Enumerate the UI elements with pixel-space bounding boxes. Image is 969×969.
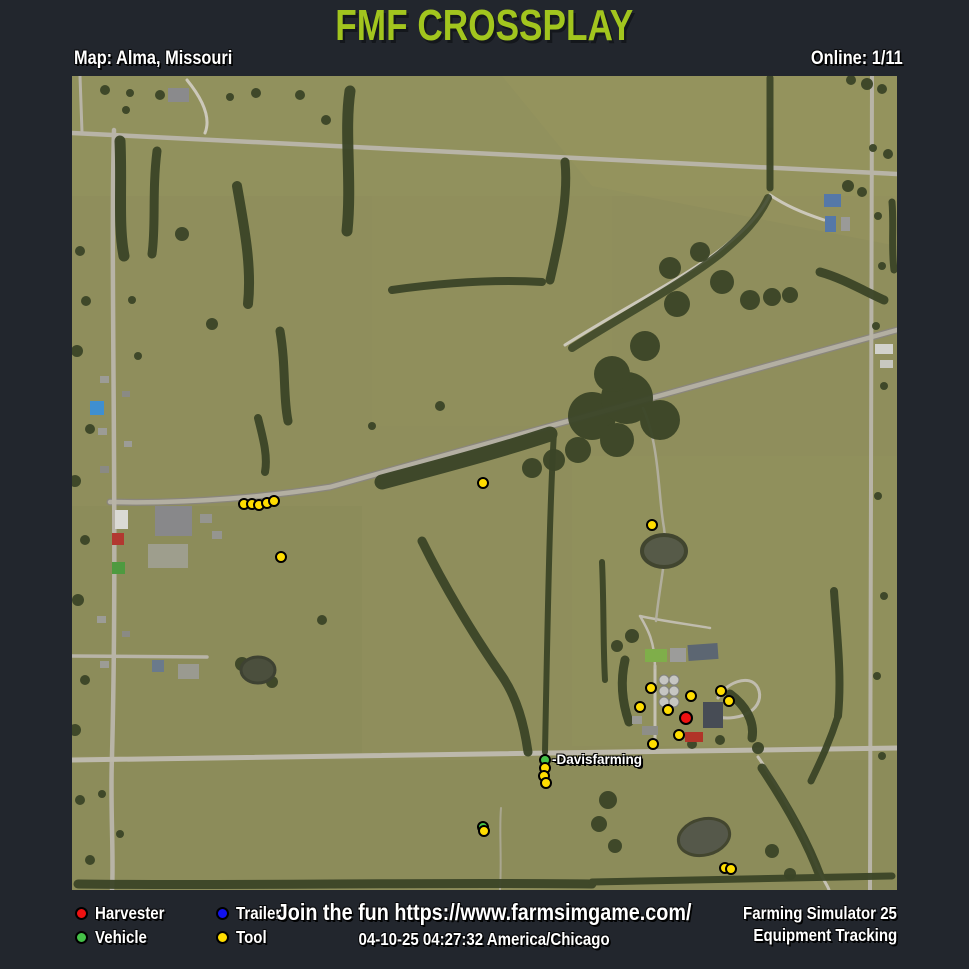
marker-tool [478, 825, 490, 837]
marker-tool [725, 863, 737, 875]
online-status: Online: 1/11 [811, 48, 903, 70]
footer: HarvesterVehicleTrailerTool Join the fun… [72, 898, 897, 964]
map-name-label: Map: Alma, Missouri [74, 48, 232, 70]
marker-tool [275, 551, 287, 563]
map-viewport: -Davisfarming [72, 76, 897, 890]
marker-tool [685, 690, 697, 702]
marker-tool [662, 704, 674, 716]
marker-tool [477, 477, 489, 489]
marker-tool [646, 519, 658, 531]
marker-tool [634, 701, 646, 713]
equipment-markers-layer: -Davisfarming [72, 76, 897, 890]
marker-harvester [679, 711, 693, 725]
timestamp-text: 04-10-25 04:27:32 America/Chicago [359, 926, 610, 952]
marker-tool [723, 695, 735, 707]
join-link-text[interactable]: Join the fun https://www.farmsimgame.com… [277, 898, 692, 926]
tracking-subtitle: Equipment Tracking [718, 924, 897, 946]
page-title-text: FMF CROSSPLAY [336, 0, 634, 52]
marker-tool [645, 682, 657, 694]
marker-tool [540, 777, 552, 789]
game-title: Farming Simulator 25 [718, 902, 897, 924]
marker-tool [647, 738, 659, 750]
subheader: Map: Alma, Missouri Online: 1/11 [74, 48, 903, 70]
player-name-label: -Davisfarming [552, 752, 642, 767]
page-title: FMF CROSSPLAY [0, 0, 969, 52]
marker-tool [268, 495, 280, 507]
marker-tool [673, 729, 685, 741]
